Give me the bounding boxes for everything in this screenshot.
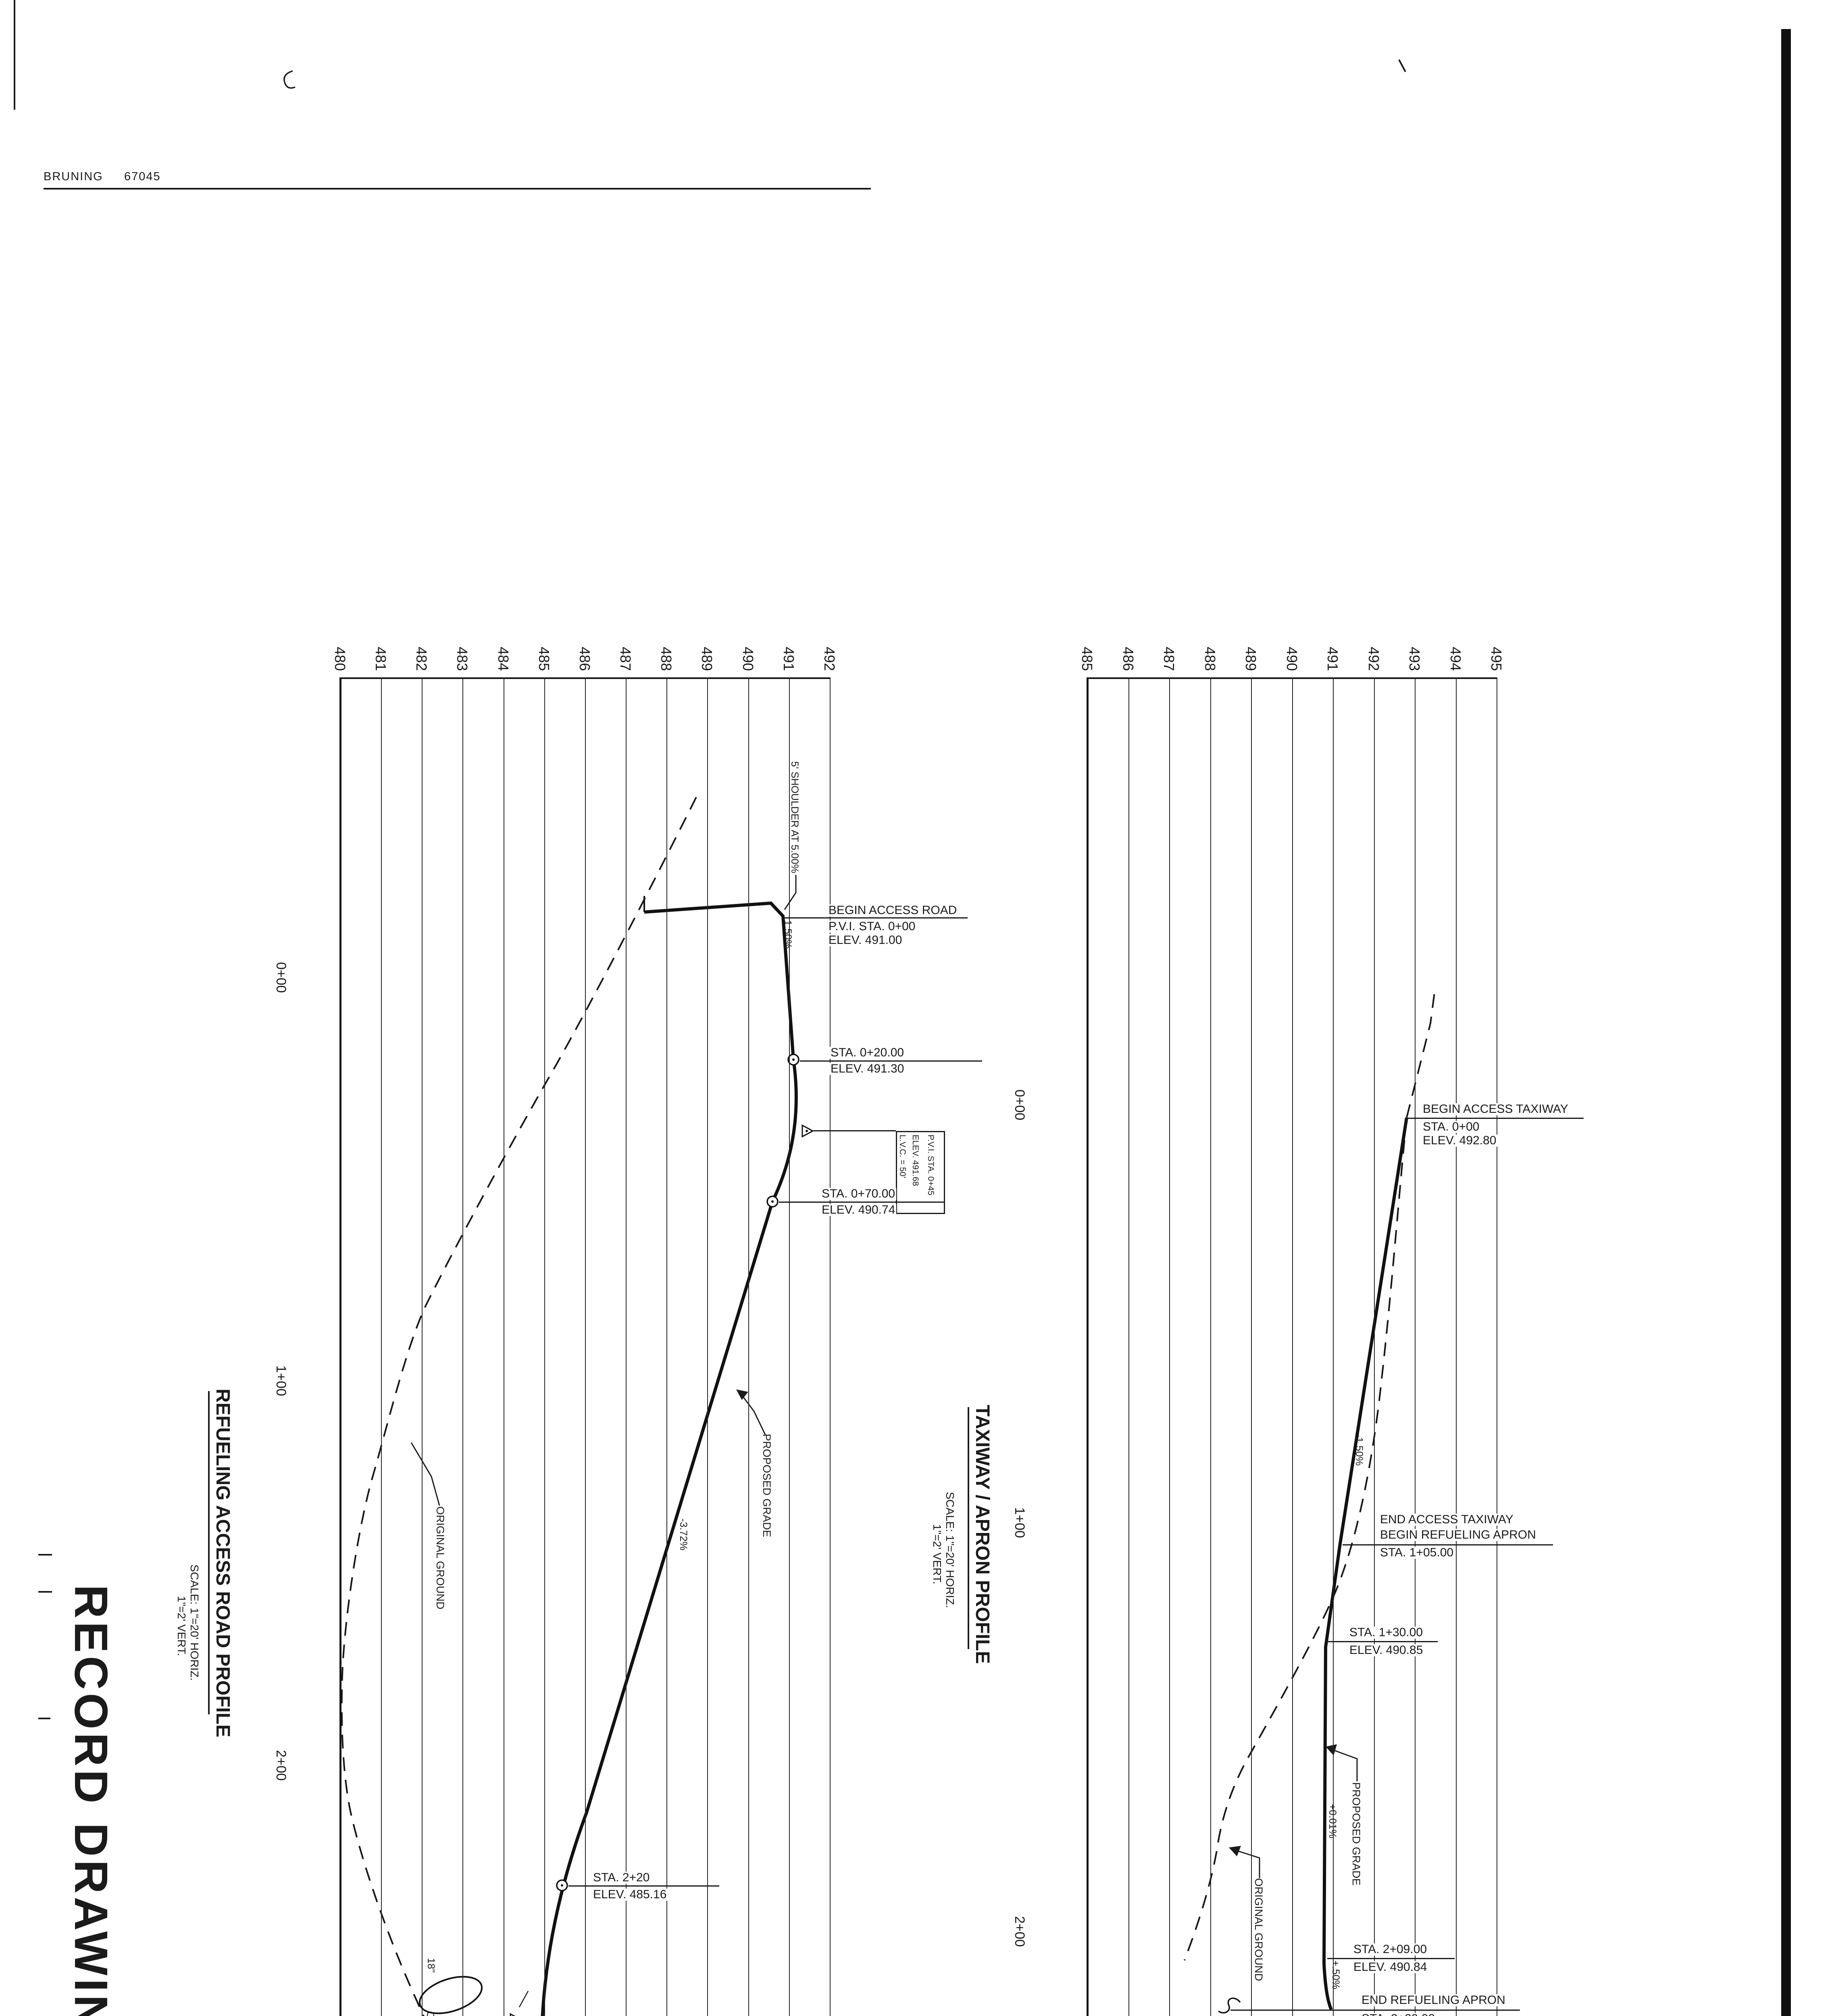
- elevation-label-top: 488: [1203, 647, 1217, 671]
- station-label: 1+00: [1013, 1507, 1026, 1538]
- elevation-gridline: [1210, 677, 1211, 2016]
- elevation-gridline: [748, 677, 749, 2016]
- taxi-original-ground-label: ORIGINAL GROUND: [1253, 1878, 1264, 1981]
- annotation-leader-end-refueling-apron: [1230, 2010, 1520, 2011]
- annotation-begin-access-taxiway: STA. 0+00: [1422, 1121, 1480, 1133]
- annotation-end-access-taxiway: STA. 1+05.00: [1379, 1547, 1455, 1559]
- annotation-sta-2-20: STA. 2+20: [592, 1872, 651, 1884]
- annotation-begin-access-taxiway: BEGIN ACCESS TAXIWAY: [1422, 1103, 1570, 1115]
- road-original-ground-label: ORIGINAL GROUND: [435, 1506, 446, 1610]
- pvi-dot: [806, 1130, 808, 1132]
- pvi-box-line: L.V.C. = 50': [898, 1135, 907, 1178]
- pvi-box-leader: [814, 1130, 896, 1131]
- taxiway-profile-title: TAXIWAY / APRON PROFILE: [972, 1405, 992, 1664]
- elevation-gridline: [381, 677, 382, 2016]
- station-label: 1+00: [274, 1365, 288, 1396]
- drawing-sheet: STATE OF VERMONT REGISTERED PROFESSIONAL…: [0, 0, 1832, 2016]
- grade-neg-150: -1.50%: [1354, 1434, 1364, 1466]
- road-proposed-grade-line: [541, 903, 796, 2016]
- annotation-sta-0-70: ELEV. 490.74: [820, 1204, 896, 1216]
- elevation-label-top: 494: [1448, 647, 1463, 671]
- annotation-end-refueling-apron: STA. 2+20.00: [1360, 2013, 1436, 2016]
- station-label: 2+00: [274, 1750, 288, 1781]
- road-original-ground-leader: [411, 1443, 439, 1506]
- elevation-label-top: 485: [1080, 647, 1094, 671]
- taxiway-original-ground-upper: [1407, 993, 1434, 1118]
- pvi-box-line: ELEV. 491.68: [911, 1135, 920, 1186]
- grade-001: +0.01%: [1327, 1804, 1337, 1839]
- elevation-gridline: [585, 677, 586, 2016]
- road-profile-scale-2: 1"=2' VERT.: [176, 1596, 187, 1656]
- annotation-sta-0-20: STA. 0+20.00: [829, 1047, 905, 1059]
- elevation-label-top: 490: [741, 647, 755, 671]
- annotation-leader-sta-2-09: [1327, 1958, 1455, 1959]
- elevation-gridline: [462, 677, 463, 2016]
- elevation-gridline: [1128, 677, 1129, 2016]
- elevation-gridline: [626, 677, 627, 2016]
- elevation-gridline: [504, 677, 504, 2016]
- elevation-label-top: 490: [1284, 647, 1299, 671]
- annotation-sta-1-30: ELEV. 490.85: [1348, 1644, 1424, 1656]
- annotation-begin-access-road: ELEV. 491.00: [827, 934, 903, 946]
- elevation-label-top: 488: [659, 647, 673, 671]
- tangent-tick: [519, 1991, 528, 2007]
- station-label: 0+00: [1013, 1089, 1026, 1120]
- taxiway-original-ground-leader: [1237, 1851, 1259, 1878]
- elevation-label-top: 489: [699, 647, 714, 671]
- elevation-label-top: 480: [333, 647, 347, 671]
- elevation-gridline: [1456, 677, 1457, 2016]
- elevation-label-top: 484: [496, 647, 510, 671]
- right-edge-bar: [1781, 29, 1791, 2016]
- elevation-label-top: 492: [822, 647, 837, 671]
- elevation-label-top: 483: [455, 647, 469, 671]
- elevation-label-top: 491: [1325, 647, 1340, 671]
- elevation-label-top: 491: [781, 647, 796, 671]
- shoulder-leader: [785, 875, 796, 910]
- elevation-label-top: 492: [1366, 647, 1381, 671]
- annotation-sta-0-70: STA. 0+70.00: [820, 1188, 896, 1200]
- elevation-gridline: [1415, 677, 1416, 2016]
- annotation-end-access-taxiway: BEGIN REFUELING APRON: [1379, 1529, 1537, 1541]
- record-drawings-watermark: RECORD DRAWINGS: [68, 1585, 114, 2016]
- elevation-gridline: [1292, 677, 1293, 2016]
- grade-pos-50: +.50%: [1330, 1960, 1341, 1989]
- annotation-sta-2-09: ELEV. 490.84: [1352, 1961, 1428, 1973]
- taxiway-profile-scale-2: 1"=2' VERT.: [931, 1524, 943, 1584]
- pvi-box-line: P.V.I. STA. 0+45: [926, 1135, 935, 1195]
- annotation-end-access-taxiway: END ACCESS TAXIWAY: [1379, 1514, 1515, 1526]
- elevation-label-top: 493: [1407, 647, 1422, 671]
- culvert-type: C.S.P.: [425, 2011, 435, 2016]
- taxiway-profile-scale-1: SCALE: 1"=20' HORIZ.: [944, 1492, 956, 1608]
- pvi-triangle-2-45: [510, 2014, 521, 2016]
- annotation-leader-end-access-taxiway: [1343, 1544, 1553, 1545]
- elevation-gridline: [1251, 677, 1252, 2016]
- road-title-underline: [208, 1391, 210, 1714]
- taxiway-proposed-grade-leader: [1333, 1750, 1357, 1781]
- elevation-gridline: [666, 677, 667, 2016]
- road-profile-title: REFUELING ACCESS ROAD PROFILE: [213, 1389, 232, 1737]
- elevation-label-top: 486: [577, 647, 592, 671]
- grade-150: 1.50%: [783, 920, 793, 949]
- elevation-gridline: [1169, 677, 1170, 2016]
- pencil-tick: [1399, 60, 1405, 72]
- chart-border-left: [339, 677, 341, 2016]
- elevation-gridline: [1497, 677, 1497, 2016]
- annotation-leader-sta-0-20: [800, 1060, 982, 1062]
- elevation-label-top: 495: [1489, 647, 1503, 671]
- taxiway-proposed-grade-line: [1324, 1118, 1407, 2010]
- road-proposed-grade-label: PROPOSED GRADE: [761, 1434, 772, 1537]
- annotation-sta-1-30: STA. 1+30.00: [1348, 1627, 1424, 1639]
- chart-border-left: [1087, 677, 1089, 2016]
- station-label: 0+00: [274, 962, 288, 993]
- annotation-begin-access-road: BEGIN ACCESS ROAD: [827, 904, 958, 916]
- annotation-sta-2-09: STA. 2+09.00: [1352, 1943, 1428, 1956]
- shoulder-note: 5' SHOULDER AT 5.00%: [789, 761, 799, 873]
- grade-neg-372: -3.72%: [678, 1518, 688, 1550]
- elevation-label-top: 486: [1121, 647, 1135, 671]
- elevation-gridline: [830, 677, 831, 2016]
- elevation-label-top: 481: [373, 647, 388, 671]
- annotation-leader-begin-access-road: [784, 917, 968, 918]
- annotation-begin-access-road: P.V.I. STA. 0+00: [827, 921, 916, 933]
- elevation-gridline: [707, 677, 708, 2016]
- annotation-leader-sta-1-30: [1326, 1641, 1438, 1642]
- taxi-proposed-grade-label: PROPOSED GRADE: [1351, 1782, 1362, 1886]
- annotation-leader-sta-2-20: [568, 1885, 719, 1887]
- annotation-sta-2-20: ELEV. 485.16: [592, 1889, 668, 1901]
- linework-layer: STATE OF VERMONT REGISTERED PROFESSIONAL…: [0, 0, 1832, 2016]
- road-profile-scale-1: SCALE: 1"=20' HORIZ.: [189, 1564, 200, 1681]
- road-original-ground-line: [342, 797, 696, 2016]
- elevation-label-top: 485: [537, 647, 551, 671]
- annotation-sta-0-20: ELEV. 491.30: [829, 1063, 905, 1075]
- annotation-end-refueling-apron: END REFUELING APRON: [1360, 1994, 1507, 2006]
- elevation-label-top: 487: [618, 647, 633, 671]
- annotation-leader-sta-0-70: [779, 1202, 945, 1203]
- elevation-gridline: [422, 677, 423, 2016]
- taxiway-title-underline: [968, 1407, 969, 1649]
- arrowhead: [1326, 1744, 1337, 1756]
- taxiway-original-ground-line: [1185, 1118, 1407, 1960]
- elevation-label-top: 482: [414, 647, 429, 671]
- culvert-size: 18": [426, 1958, 436, 1973]
- elevation-label-top: 487: [1162, 647, 1176, 671]
- culvert-ellipse: [415, 1970, 487, 2016]
- elevation-gridline: [544, 677, 545, 2016]
- elevation-label-top: 489: [1243, 647, 1258, 671]
- vendor-stamp: BRUNING: [44, 171, 103, 183]
- vendor-code: 67045: [124, 171, 161, 183]
- arrowhead: [736, 1389, 748, 1400]
- annotation-begin-access-taxiway: ELEV. 492.80: [1422, 1135, 1497, 1147]
- annotation-leader-begin-access-taxiway: [1405, 1118, 1584, 1119]
- road-proposed-grade-leader: [742, 1395, 765, 1435]
- pencil-mark: [284, 71, 295, 88]
- station-label: 2+00: [1013, 1916, 1026, 1947]
- elevation-gridline: [1374, 677, 1375, 2016]
- elevation-gridline: [789, 677, 790, 2016]
